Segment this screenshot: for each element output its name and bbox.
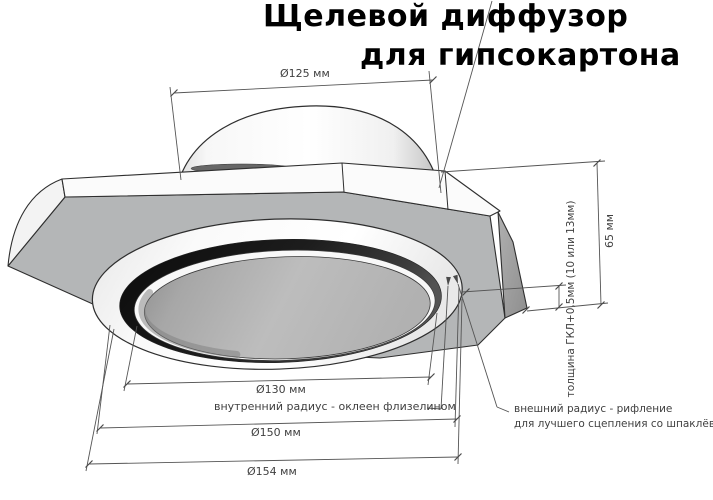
- dim-label-outer-diameter: Ø154 мм: [247, 466, 297, 478]
- dim-125-ext-left: [170, 87, 181, 180]
- callout-outer-radius-line2: для лучшего сцепления со шпаклёвкой: [514, 417, 713, 432]
- dim-label-height: 65 мм: [604, 214, 616, 248]
- dim-150-ext-left: [97, 325, 110, 434]
- callout-outer-radius-line1: внешний радиус - рифление: [514, 402, 713, 417]
- page-title-line1: Щелевой диффузор: [263, 1, 628, 33]
- dim-label-board-thickness: толщина ГКЛ+0,5мм (10 или 13мм): [565, 201, 577, 398]
- page-title-line2: для гипсокартона: [360, 40, 681, 72]
- callout-inner-radius: внутренний радиус - оклеен флизелином: [214, 401, 456, 413]
- technical-drawing-page: Щелевой диффузор для гипсокартона Ø125 м…: [0, 0, 713, 500]
- dim-label-collar-diameter: Ø125 мм: [280, 68, 330, 80]
- callout-outer-radius: внешний радиус - рифление для лучшего сц…: [514, 402, 713, 431]
- dim-125-line: [174, 80, 433, 93]
- outer-radius-leader-dash: [497, 407, 509, 412]
- dim-154-line: [89, 457, 458, 464]
- dim-154-ext-left: [86, 329, 114, 471]
- dim-65-line: [597, 163, 601, 305]
- dim-65-ext-top: [441, 161, 605, 172]
- diffuser-3d-model: [8, 106, 527, 376]
- dim-label-ring-diameter: Ø150 мм: [251, 427, 301, 439]
- dim-label-inner-ring-diameter: Ø130 мм: [256, 384, 306, 396]
